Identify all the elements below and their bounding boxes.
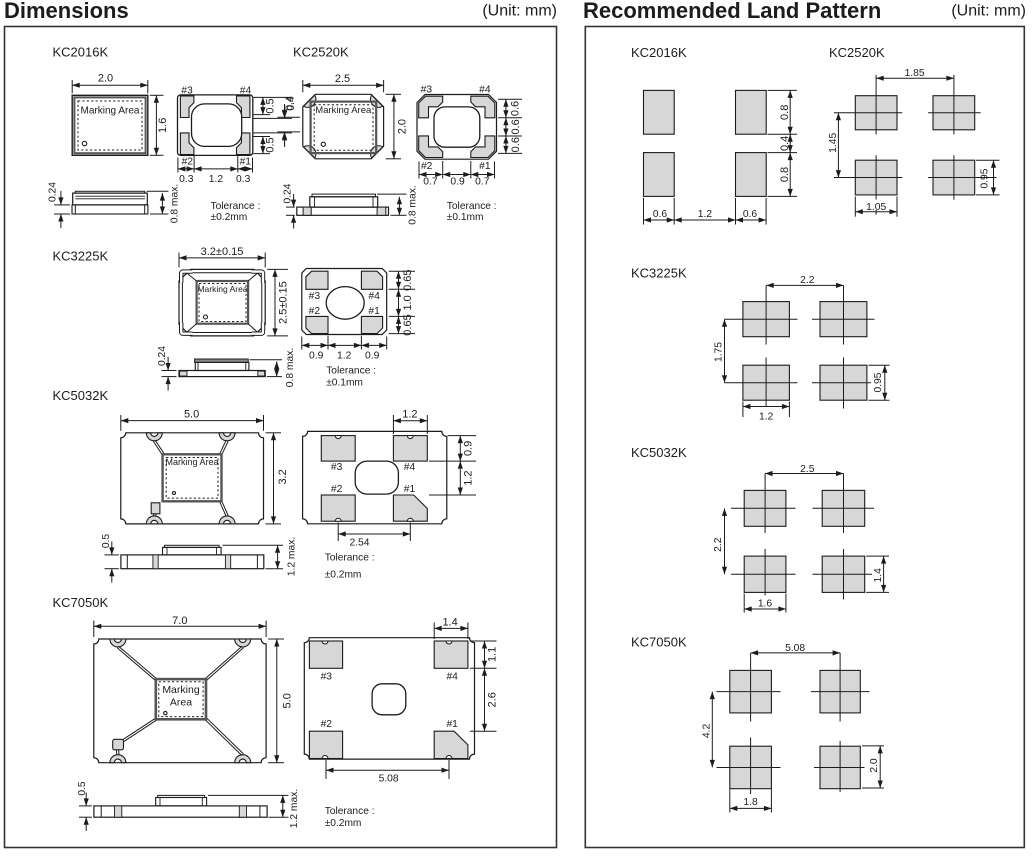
- svg-text:±0.2mm: ±0.2mm: [211, 212, 248, 223]
- svg-text:(Unit: mm): (Unit: mm): [951, 3, 1026, 20]
- svg-text:0.8: 0.8: [779, 105, 791, 120]
- svg-text:2.6: 2.6: [486, 692, 498, 707]
- svg-text:0.7: 0.7: [423, 177, 438, 188]
- svg-text:1.2 max.: 1.2 max.: [287, 537, 298, 577]
- svg-text:1.1: 1.1: [486, 647, 498, 662]
- svg-text:0.24: 0.24: [48, 182, 59, 202]
- svg-text:#2: #2: [421, 161, 433, 172]
- svg-text:0.5: 0.5: [101, 534, 112, 549]
- svg-text:1.4: 1.4: [873, 568, 884, 583]
- svg-text:0.7: 0.7: [475, 177, 490, 188]
- svg-text:5.08: 5.08: [379, 774, 399, 785]
- svg-text:#1: #1: [479, 161, 491, 172]
- svg-text:0.5: 0.5: [77, 781, 88, 796]
- svg-text:5.08: 5.08: [785, 643, 805, 654]
- svg-text:±0.1mm: ±0.1mm: [326, 378, 363, 389]
- svg-text:0.5: 0.5: [265, 137, 277, 152]
- svg-text:#4: #4: [368, 291, 380, 302]
- svg-text:Marking Area: Marking Area: [81, 106, 140, 117]
- svg-text:#4: #4: [240, 86, 252, 97]
- svg-text:Recommended Land Pattern: Recommended Land Pattern: [583, 0, 881, 23]
- svg-text:#2: #2: [321, 719, 333, 730]
- svg-text:0.65: 0.65: [402, 269, 414, 290]
- svg-text:Tolerance :: Tolerance :: [325, 553, 375, 564]
- svg-text:1.2: 1.2: [698, 209, 713, 220]
- svg-text:Dimensions: Dimensions: [4, 0, 129, 23]
- svg-text:Tolerance :: Tolerance :: [211, 201, 261, 212]
- svg-text:0.3: 0.3: [179, 174, 194, 185]
- svg-text:#1: #1: [240, 157, 252, 168]
- svg-text:KC7050K: KC7050K: [631, 635, 687, 650]
- svg-text:1.85: 1.85: [905, 68, 925, 79]
- svg-text:KC5032K: KC5032K: [53, 388, 109, 403]
- svg-text:3.2±0.15: 3.2±0.15: [201, 246, 244, 258]
- svg-text:1.2: 1.2: [462, 470, 474, 485]
- svg-text:Marking Area: Marking Area: [197, 284, 247, 294]
- svg-text:0.65: 0.65: [402, 314, 414, 335]
- svg-text:±0.2mm: ±0.2mm: [325, 570, 362, 581]
- svg-text:±0.1mm: ±0.1mm: [447, 212, 484, 223]
- svg-text:#3: #3: [309, 291, 321, 302]
- svg-text:2.0: 2.0: [98, 73, 113, 85]
- svg-text:0.6: 0.6: [653, 209, 668, 220]
- svg-text:0.8 max.: 0.8 max.: [170, 184, 181, 224]
- svg-text:0.6: 0.6: [510, 119, 522, 134]
- svg-text:0.95: 0.95: [873, 372, 884, 392]
- svg-text:0.95: 0.95: [980, 168, 991, 188]
- svg-text:Tolerance :: Tolerance :: [326, 366, 376, 377]
- svg-text:0.6: 0.6: [509, 101, 521, 116]
- svg-text:1.6: 1.6: [157, 118, 169, 133]
- svg-text:1.2: 1.2: [209, 174, 224, 185]
- svg-text:1.4: 1.4: [442, 616, 457, 628]
- svg-text:0.9: 0.9: [365, 350, 380, 361]
- svg-text:0.4: 0.4: [284, 96, 295, 111]
- svg-text:Tolerance :: Tolerance :: [447, 201, 497, 212]
- svg-text:0.24: 0.24: [157, 346, 168, 366]
- svg-text:0.9: 0.9: [309, 350, 324, 361]
- svg-text:#1: #1: [446, 719, 458, 730]
- svg-text:#3: #3: [181, 86, 193, 97]
- svg-text:KC3225K: KC3225K: [631, 266, 687, 281]
- svg-text:0.6: 0.6: [743, 209, 758, 220]
- svg-text:1.2: 1.2: [402, 409, 417, 421]
- svg-text:(Unit: mm): (Unit: mm): [482, 3, 557, 20]
- svg-text:4.2: 4.2: [701, 723, 712, 738]
- svg-text:#3: #3: [421, 85, 433, 96]
- svg-text:KC2520K: KC2520K: [293, 45, 349, 60]
- svg-text:KC5032K: KC5032K: [631, 445, 687, 460]
- svg-text:2.2: 2.2: [713, 537, 724, 552]
- svg-text:1.8: 1.8: [743, 797, 758, 808]
- svg-text:Marking Area: Marking Area: [165, 457, 218, 467]
- svg-text:#1: #1: [404, 484, 416, 495]
- svg-text:±0.2mm: ±0.2mm: [325, 818, 362, 829]
- svg-text:3.2: 3.2: [277, 469, 289, 484]
- svg-text:2.5: 2.5: [800, 464, 815, 475]
- svg-text:0.9: 0.9: [450, 177, 465, 188]
- svg-text:KC7050K: KC7050K: [53, 595, 109, 610]
- svg-text:#1: #1: [368, 306, 380, 317]
- svg-text:#4: #4: [446, 672, 458, 683]
- svg-text:1.2 max.: 1.2 max.: [289, 789, 300, 829]
- svg-text:2.2: 2.2: [800, 275, 815, 286]
- svg-text:0.9: 0.9: [462, 441, 474, 456]
- svg-text:2.0: 2.0: [869, 758, 880, 773]
- svg-text:#3: #3: [331, 462, 343, 473]
- svg-text:0.24: 0.24: [283, 183, 294, 203]
- svg-text:#4: #4: [404, 462, 416, 473]
- svg-text:5.0: 5.0: [282, 693, 294, 708]
- svg-text:Marking Area: Marking Area: [315, 105, 372, 116]
- svg-text:KC2016K: KC2016K: [53, 45, 109, 60]
- svg-text:0.8 max.: 0.8 max.: [407, 185, 418, 225]
- svg-text:0.8: 0.8: [779, 167, 791, 182]
- svg-text:1.6: 1.6: [758, 599, 773, 610]
- svg-text:0.4: 0.4: [779, 136, 791, 151]
- svg-text:#2: #2: [182, 157, 194, 168]
- svg-text:Area: Area: [170, 697, 192, 709]
- svg-text:1.05: 1.05: [866, 202, 886, 213]
- svg-text:KC3225K: KC3225K: [53, 249, 109, 264]
- svg-text:#3: #3: [321, 672, 333, 683]
- svg-text:7.0: 7.0: [172, 615, 187, 627]
- svg-text:2.0: 2.0: [396, 119, 408, 134]
- svg-text:1.45: 1.45: [828, 133, 839, 153]
- svg-text:2.5: 2.5: [335, 73, 350, 85]
- svg-text:1.2: 1.2: [337, 350, 352, 361]
- svg-text:0.6: 0.6: [510, 137, 522, 152]
- svg-text:#2: #2: [309, 306, 321, 317]
- svg-text:2.5±0.15: 2.5±0.15: [277, 281, 289, 324]
- svg-text:#4: #4: [479, 85, 491, 96]
- svg-text:Tolerance :: Tolerance :: [325, 806, 375, 817]
- svg-text:Marking: Marking: [162, 684, 200, 696]
- svg-text:0.8 max.: 0.8 max.: [285, 348, 296, 388]
- svg-text:0.5: 0.5: [265, 98, 277, 113]
- svg-text:1.2: 1.2: [759, 412, 774, 423]
- svg-text:1.0: 1.0: [402, 295, 414, 310]
- svg-text:1.75: 1.75: [713, 342, 724, 362]
- svg-text:#2: #2: [331, 484, 343, 495]
- svg-text:KC2016K: KC2016K: [631, 45, 687, 60]
- svg-text:0.3: 0.3: [236, 174, 251, 185]
- svg-text:5.0: 5.0: [184, 409, 199, 421]
- svg-text:2.54: 2.54: [349, 537, 369, 548]
- svg-text:KC2520K: KC2520K: [829, 45, 885, 60]
